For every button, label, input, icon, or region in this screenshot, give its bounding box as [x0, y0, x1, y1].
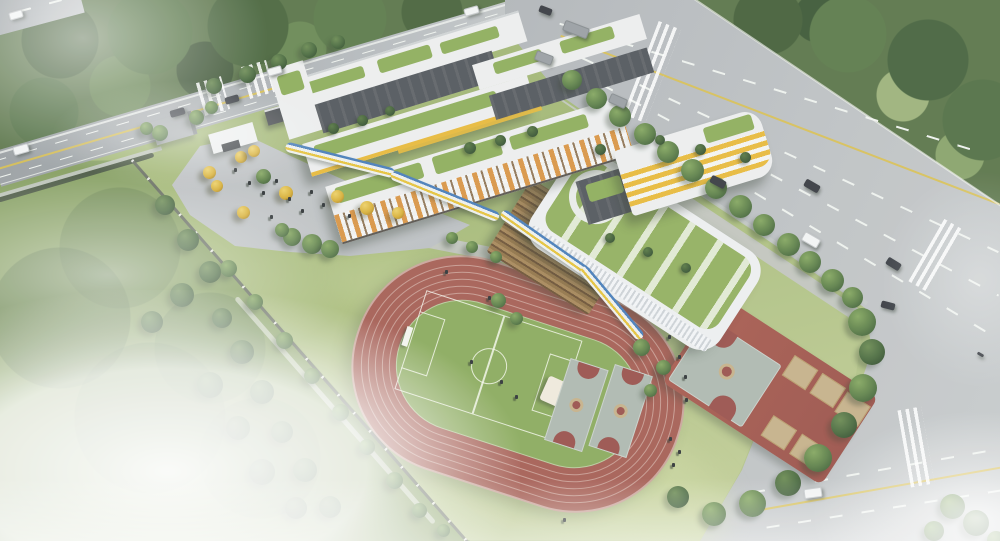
person	[684, 375, 687, 379]
campus-aerial-rendering	[0, 0, 1000, 541]
person	[470, 360, 473, 364]
person	[248, 181, 251, 185]
people-layer	[0, 0, 1000, 541]
person	[445, 270, 448, 274]
person	[515, 395, 518, 399]
person	[288, 197, 291, 201]
person	[234, 168, 237, 172]
person	[500, 380, 503, 384]
person	[668, 335, 671, 339]
person	[669, 437, 672, 441]
person	[685, 398, 688, 402]
person	[322, 203, 325, 207]
person	[672, 463, 675, 467]
person	[488, 296, 491, 300]
person	[301, 209, 304, 213]
person	[678, 355, 681, 359]
person	[275, 179, 278, 183]
person	[270, 215, 273, 219]
person	[348, 214, 351, 218]
person	[262, 191, 265, 195]
person	[310, 190, 313, 194]
person	[678, 450, 681, 454]
person	[563, 518, 566, 522]
